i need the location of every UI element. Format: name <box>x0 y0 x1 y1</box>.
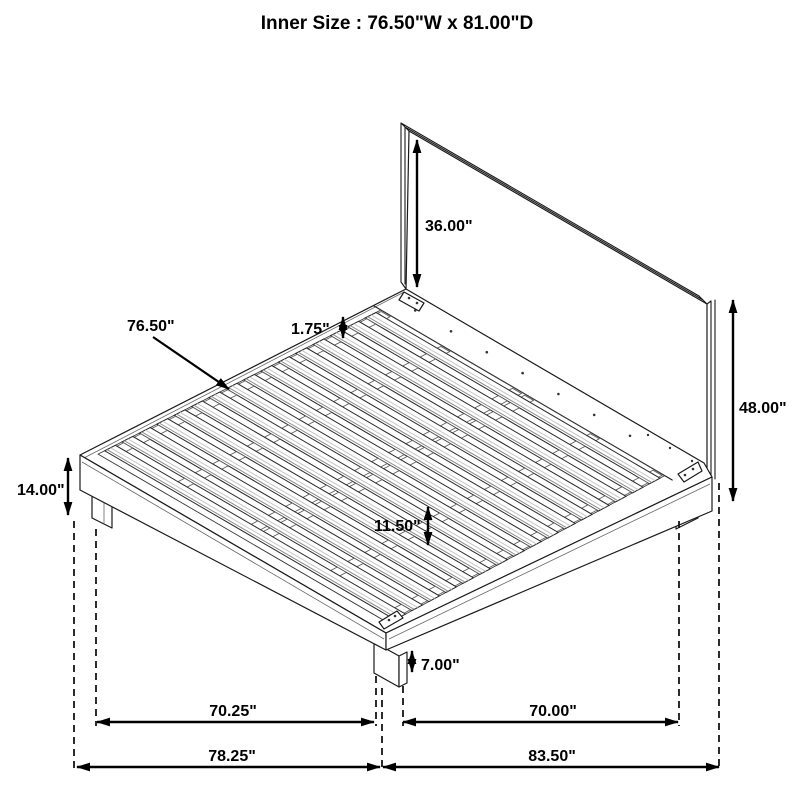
dim-label: 83.50" <box>528 748 576 765</box>
bed-dimension-diagram-page: Inner Size : 76.50"W x 81.00"D <box>0 0 800 800</box>
dim-label: 76.50" <box>127 318 175 335</box>
screw-dot <box>408 297 411 300</box>
screw-dot <box>416 302 419 305</box>
dim-label: 11.50" <box>374 518 421 535</box>
screw-dot <box>684 474 687 477</box>
screw-dot <box>691 460 693 462</box>
screw-dot <box>692 468 695 471</box>
dim-label: 70.25" <box>209 703 257 720</box>
dim-label: 78.25" <box>208 748 256 765</box>
screw-dot <box>450 330 453 333</box>
dim-label: 36.00" <box>425 218 473 235</box>
dim-label: 1.75" <box>291 321 330 338</box>
screw-dot <box>629 435 632 438</box>
screw-dot <box>557 393 560 396</box>
diagram-canvas: Inner Size : 76.50"W x 81.00"D <box>0 0 800 800</box>
front-leg-side <box>399 652 407 687</box>
screw-dot <box>593 414 596 417</box>
dim-label: 7.00" <box>421 657 460 674</box>
screw-dot <box>486 351 489 354</box>
screw-dot <box>388 619 391 622</box>
screw-dot <box>669 447 671 449</box>
dim-label: 48.00" <box>739 400 787 417</box>
screw-dot <box>394 615 397 618</box>
screw-dot <box>647 434 649 436</box>
dim-label: 70.00" <box>529 703 577 720</box>
dim-label: 14.00" <box>17 482 65 499</box>
page-title: Inner Size : 76.50"W x 81.00"D <box>261 13 534 34</box>
screw-dot <box>521 372 524 375</box>
